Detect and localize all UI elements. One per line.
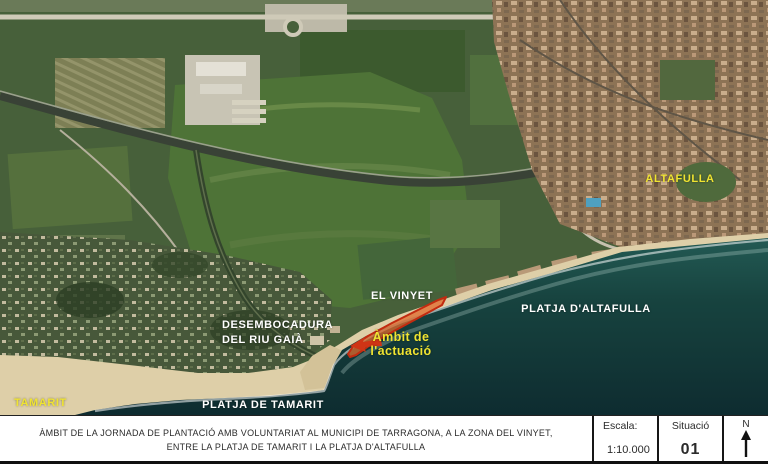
- label-altafulla: ALTAFULLA: [645, 173, 714, 185]
- drawing-caption: ÀMBIT DE LA JORNADA DE PLANTACIÓ AMB VOL…: [0, 416, 592, 461]
- label-ambit-actuacio: Àmbit de l'actuació: [370, 330, 431, 358]
- label-tamarit: TAMARIT: [14, 397, 67, 409]
- caption-line-1: ÀMBIT DE LA JORNADA DE PLANTACIÓ AMB VOL…: [39, 428, 552, 438]
- scale-value: 1:10.000: [603, 444, 657, 456]
- north-box: N: [722, 416, 768, 461]
- title-block: ÀMBIT DE LA JORNADA DE PLANTACIÓ AMB VOL…: [0, 415, 768, 461]
- caption-line-2: ENTRE LA PLATJA DE TAMARIT I LA PLATJA D…: [167, 442, 426, 452]
- scale-box: Escala: 1:10.000: [592, 416, 657, 461]
- label-platja-tamarit: PLATJA DE TAMARIT: [202, 399, 324, 411]
- label-el-vinyet: EL VINYET: [371, 290, 433, 302]
- scale-label: Escala:: [603, 420, 657, 432]
- situation-box: Situació 01: [657, 416, 722, 461]
- north-arrow-icon: [739, 430, 753, 460]
- aerial-map: ALTAFULLA EL VINYET PLATJA D'ALTAFULLA D…: [0, 0, 768, 415]
- situation-number: 01: [681, 441, 701, 459]
- situation-label: Situació: [672, 420, 709, 432]
- label-desembocadura: DESEMBOCADURA DEL RIU GAIÀ: [222, 318, 333, 348]
- north-label: N: [742, 419, 749, 430]
- label-platja-altafulla: PLATJA D'ALTAFULLA: [521, 303, 651, 315]
- situation-plan-sheet: ALTAFULLA EL VINYET PLATJA D'ALTAFULLA D…: [0, 0, 768, 464]
